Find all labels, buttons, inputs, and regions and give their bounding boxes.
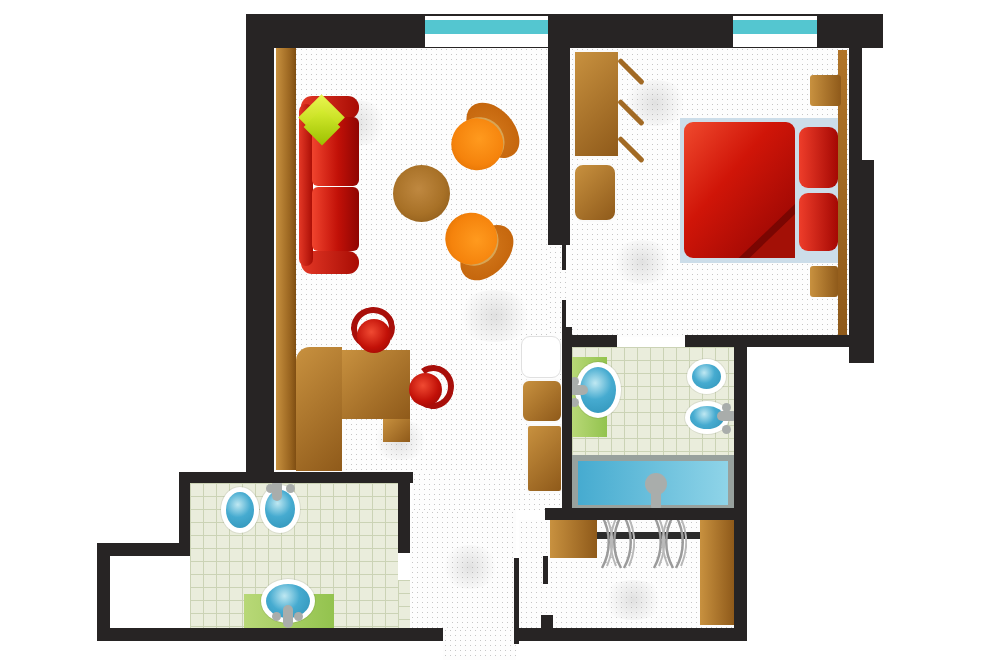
minibar-cabinet-upper (521, 379, 563, 423)
wall-guestbath-top (179, 472, 413, 483)
floor-plan-canvas (0, 0, 990, 660)
washbasin-faucet-knob (272, 612, 281, 621)
closet-cabinet-right (700, 520, 734, 625)
nightstand-left (573, 163, 617, 222)
sofa-cushion (312, 187, 359, 251)
coffee-table (393, 165, 450, 222)
closet-hanger (621, 514, 635, 570)
minibar-cabinet-lower (526, 424, 563, 493)
fridge (521, 336, 561, 378)
bathroom-guest-door-leaf (398, 550, 410, 580)
wall-closet-tab (541, 615, 553, 628)
wall-living-bedroom (548, 14, 570, 245)
bed-pillow (799, 127, 838, 188)
floor-shading (440, 545, 500, 589)
wall-notch-top (97, 543, 190, 556)
floor-shading (610, 240, 674, 284)
nightstand-top-right (810, 75, 841, 106)
wall-stub-corridor (562, 300, 566, 327)
wall-guestbath-left (179, 483, 190, 545)
closet-cabinet-left (550, 520, 597, 558)
wardrobe (573, 50, 620, 158)
bidet-faucet-knob (722, 425, 731, 434)
toilet (687, 359, 726, 394)
washbasin-faucet (283, 605, 293, 628)
washbasin-faucet-knob (294, 612, 303, 621)
toilet-flush-knob (286, 484, 295, 493)
bathroom-guest-door-tile (398, 580, 410, 628)
wall-bedroom-bottom-right (685, 335, 850, 347)
wall-left (246, 14, 274, 483)
desk-wing (342, 350, 410, 419)
wall-bottom-left (97, 628, 443, 641)
bedroom-door-leaf (562, 245, 566, 270)
bidet (221, 487, 259, 533)
wall-tub-closet (545, 508, 736, 520)
sideboard (276, 48, 296, 470)
bidet-bowl (226, 492, 254, 528)
wall-bedroom-bottom-left (562, 335, 617, 347)
wall-closet-stub (543, 556, 548, 584)
wall-mainbath-left (562, 327, 572, 520)
wall-right-lower (849, 160, 874, 363)
bedroom-doorway-floor (548, 245, 570, 337)
floor-shading (600, 580, 666, 620)
bedroom-window-glass (733, 20, 817, 34)
wall-right-upper (849, 48, 862, 160)
wall-mainbath-right (734, 347, 747, 641)
entry-floor (443, 628, 516, 660)
desk-chair (357, 319, 391, 353)
wall-guestbath-right (398, 483, 410, 553)
desk-chair (409, 373, 442, 406)
desk-return (383, 419, 410, 442)
entry-door-leaf (514, 558, 519, 644)
living-room-window-glass (425, 20, 548, 34)
toilet-bowl (692, 364, 721, 389)
desk (296, 347, 342, 471)
closet-hanger (673, 514, 687, 570)
nightstand-bottom-right (810, 266, 838, 297)
floor-shading (455, 290, 535, 342)
wall-closet-bottom (519, 628, 747, 641)
bed-pillow (799, 193, 838, 251)
